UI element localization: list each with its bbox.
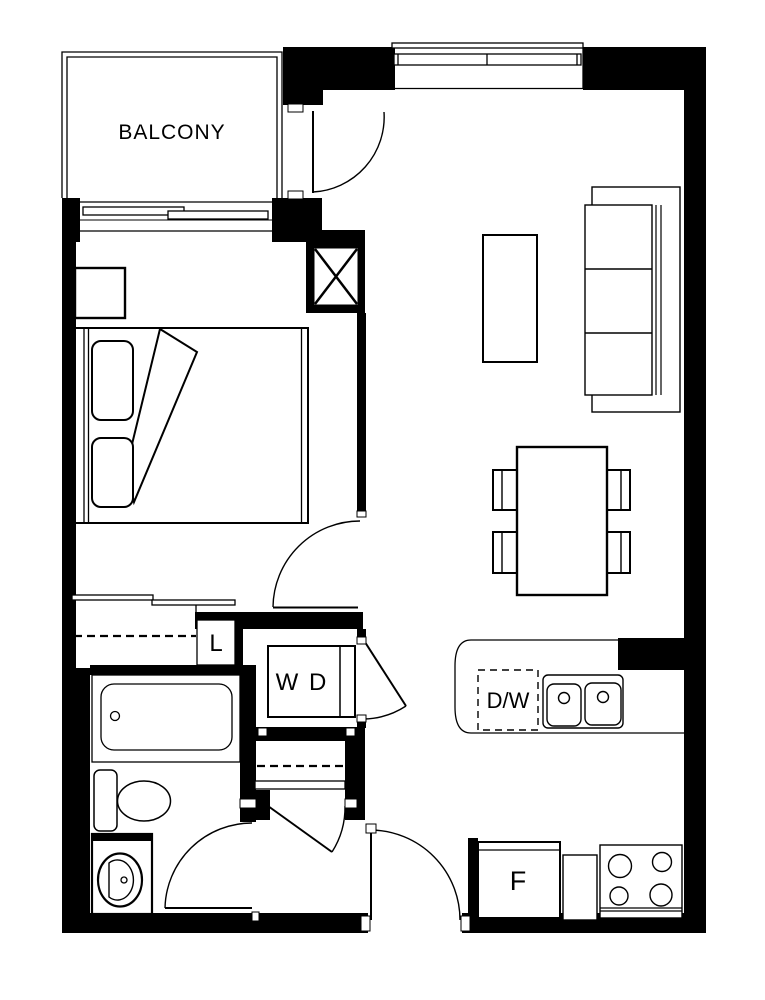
jamb-wd-closet-right	[346, 728, 355, 736]
fridge-label: F	[510, 866, 527, 896]
chair-bottom-left	[493, 532, 517, 573]
entry-door-arc	[371, 830, 460, 920]
jamb-balcony-bottom	[288, 191, 303, 199]
chair-bottom-right	[607, 532, 630, 573]
coat-door-leaf	[268, 806, 332, 852]
coat-door-arc	[332, 806, 345, 852]
chair-top-left	[493, 470, 517, 510]
wall-bath-top	[90, 665, 256, 675]
wall-counter-chunk	[618, 638, 684, 670]
wd-door-arc	[364, 706, 406, 719]
jamb-coat-right	[345, 799, 357, 808]
coat-closet-front	[255, 781, 345, 789]
wall-kitchen-stub	[468, 838, 478, 920]
living-room	[483, 187, 680, 595]
bedroom-sliding-door	[76, 202, 272, 231]
sink-basin-left	[547, 684, 581, 726]
dining-table	[517, 447, 607, 595]
burner-bottom-right	[650, 884, 672, 906]
wall-top-left-leg	[283, 90, 323, 105]
jamb-entry-top	[366, 824, 376, 833]
toilet-bowl	[118, 781, 171, 821]
sink-drain-left	[559, 693, 570, 704]
balcony-jamb-right	[272, 198, 322, 242]
wall-right	[684, 47, 706, 933]
bathroom	[92, 675, 240, 914]
chair-top-right	[607, 470, 630, 510]
pillow-top	[92, 341, 133, 420]
balcony-door-arc	[313, 112, 384, 192]
jamb-bedroom-door	[357, 511, 366, 517]
balcony-label: BALCONY	[118, 121, 225, 144]
window-outer-band	[392, 43, 583, 48]
kitchen: D/W F	[455, 640, 684, 920]
floor-plan: BALCONY	[0, 0, 765, 1000]
toilet-tank	[94, 770, 117, 831]
linen-closet-label: L	[209, 630, 222, 657]
bedroom-door-arc	[273, 521, 360, 607]
wall-top-left-chunk	[283, 47, 395, 90]
jamb-wd-top	[357, 637, 366, 644]
jamb-entry-right	[461, 916, 470, 931]
bathroom-door-arc	[165, 823, 252, 908]
sink-drain-right	[598, 692, 609, 703]
washer-dryer-label: W D	[276, 669, 329, 696]
jamb-wd-closet-left	[258, 728, 267, 736]
burner-top-left	[609, 855, 632, 878]
jamb-balcony-top	[288, 104, 303, 112]
living-window	[392, 43, 583, 89]
wall-bedroom-divider	[357, 313, 366, 512]
burner-bottom-left	[610, 887, 628, 905]
coffee-table	[483, 235, 537, 362]
sink-basin-right	[585, 683, 621, 725]
shaft	[314, 248, 358, 305]
burner-top-right	[653, 853, 672, 872]
wall-bottom-left-span	[62, 913, 368, 933]
bathtub	[101, 684, 232, 750]
wd-door-leaf	[363, 639, 406, 706]
tub-drain	[111, 712, 120, 721]
dishwasher-label: D/W	[487, 688, 530, 713]
jamb-bath-top	[240, 799, 256, 808]
vanity-backsplash	[92, 834, 152, 841]
jamb-entry-left	[361, 916, 370, 931]
vanity-drain	[121, 877, 127, 883]
jamb-wd-bottom	[357, 715, 366, 722]
pillow-bottom	[92, 438, 133, 507]
wall-top-right	[583, 47, 684, 90]
bedroom-closet-slider-left	[72, 595, 153, 600]
sofa-cushions	[585, 205, 652, 395]
wall-left-lower	[62, 668, 90, 918]
bedroom-closet-slider-right	[152, 600, 235, 605]
slider-panel-right	[168, 211, 268, 219]
counter-segment	[563, 855, 597, 920]
balcony-jamb-left	[62, 198, 80, 242]
bedroom	[75, 268, 308, 523]
jamb-bath-bottom	[252, 912, 259, 921]
dining-set	[493, 447, 630, 595]
nightstand	[75, 268, 125, 318]
